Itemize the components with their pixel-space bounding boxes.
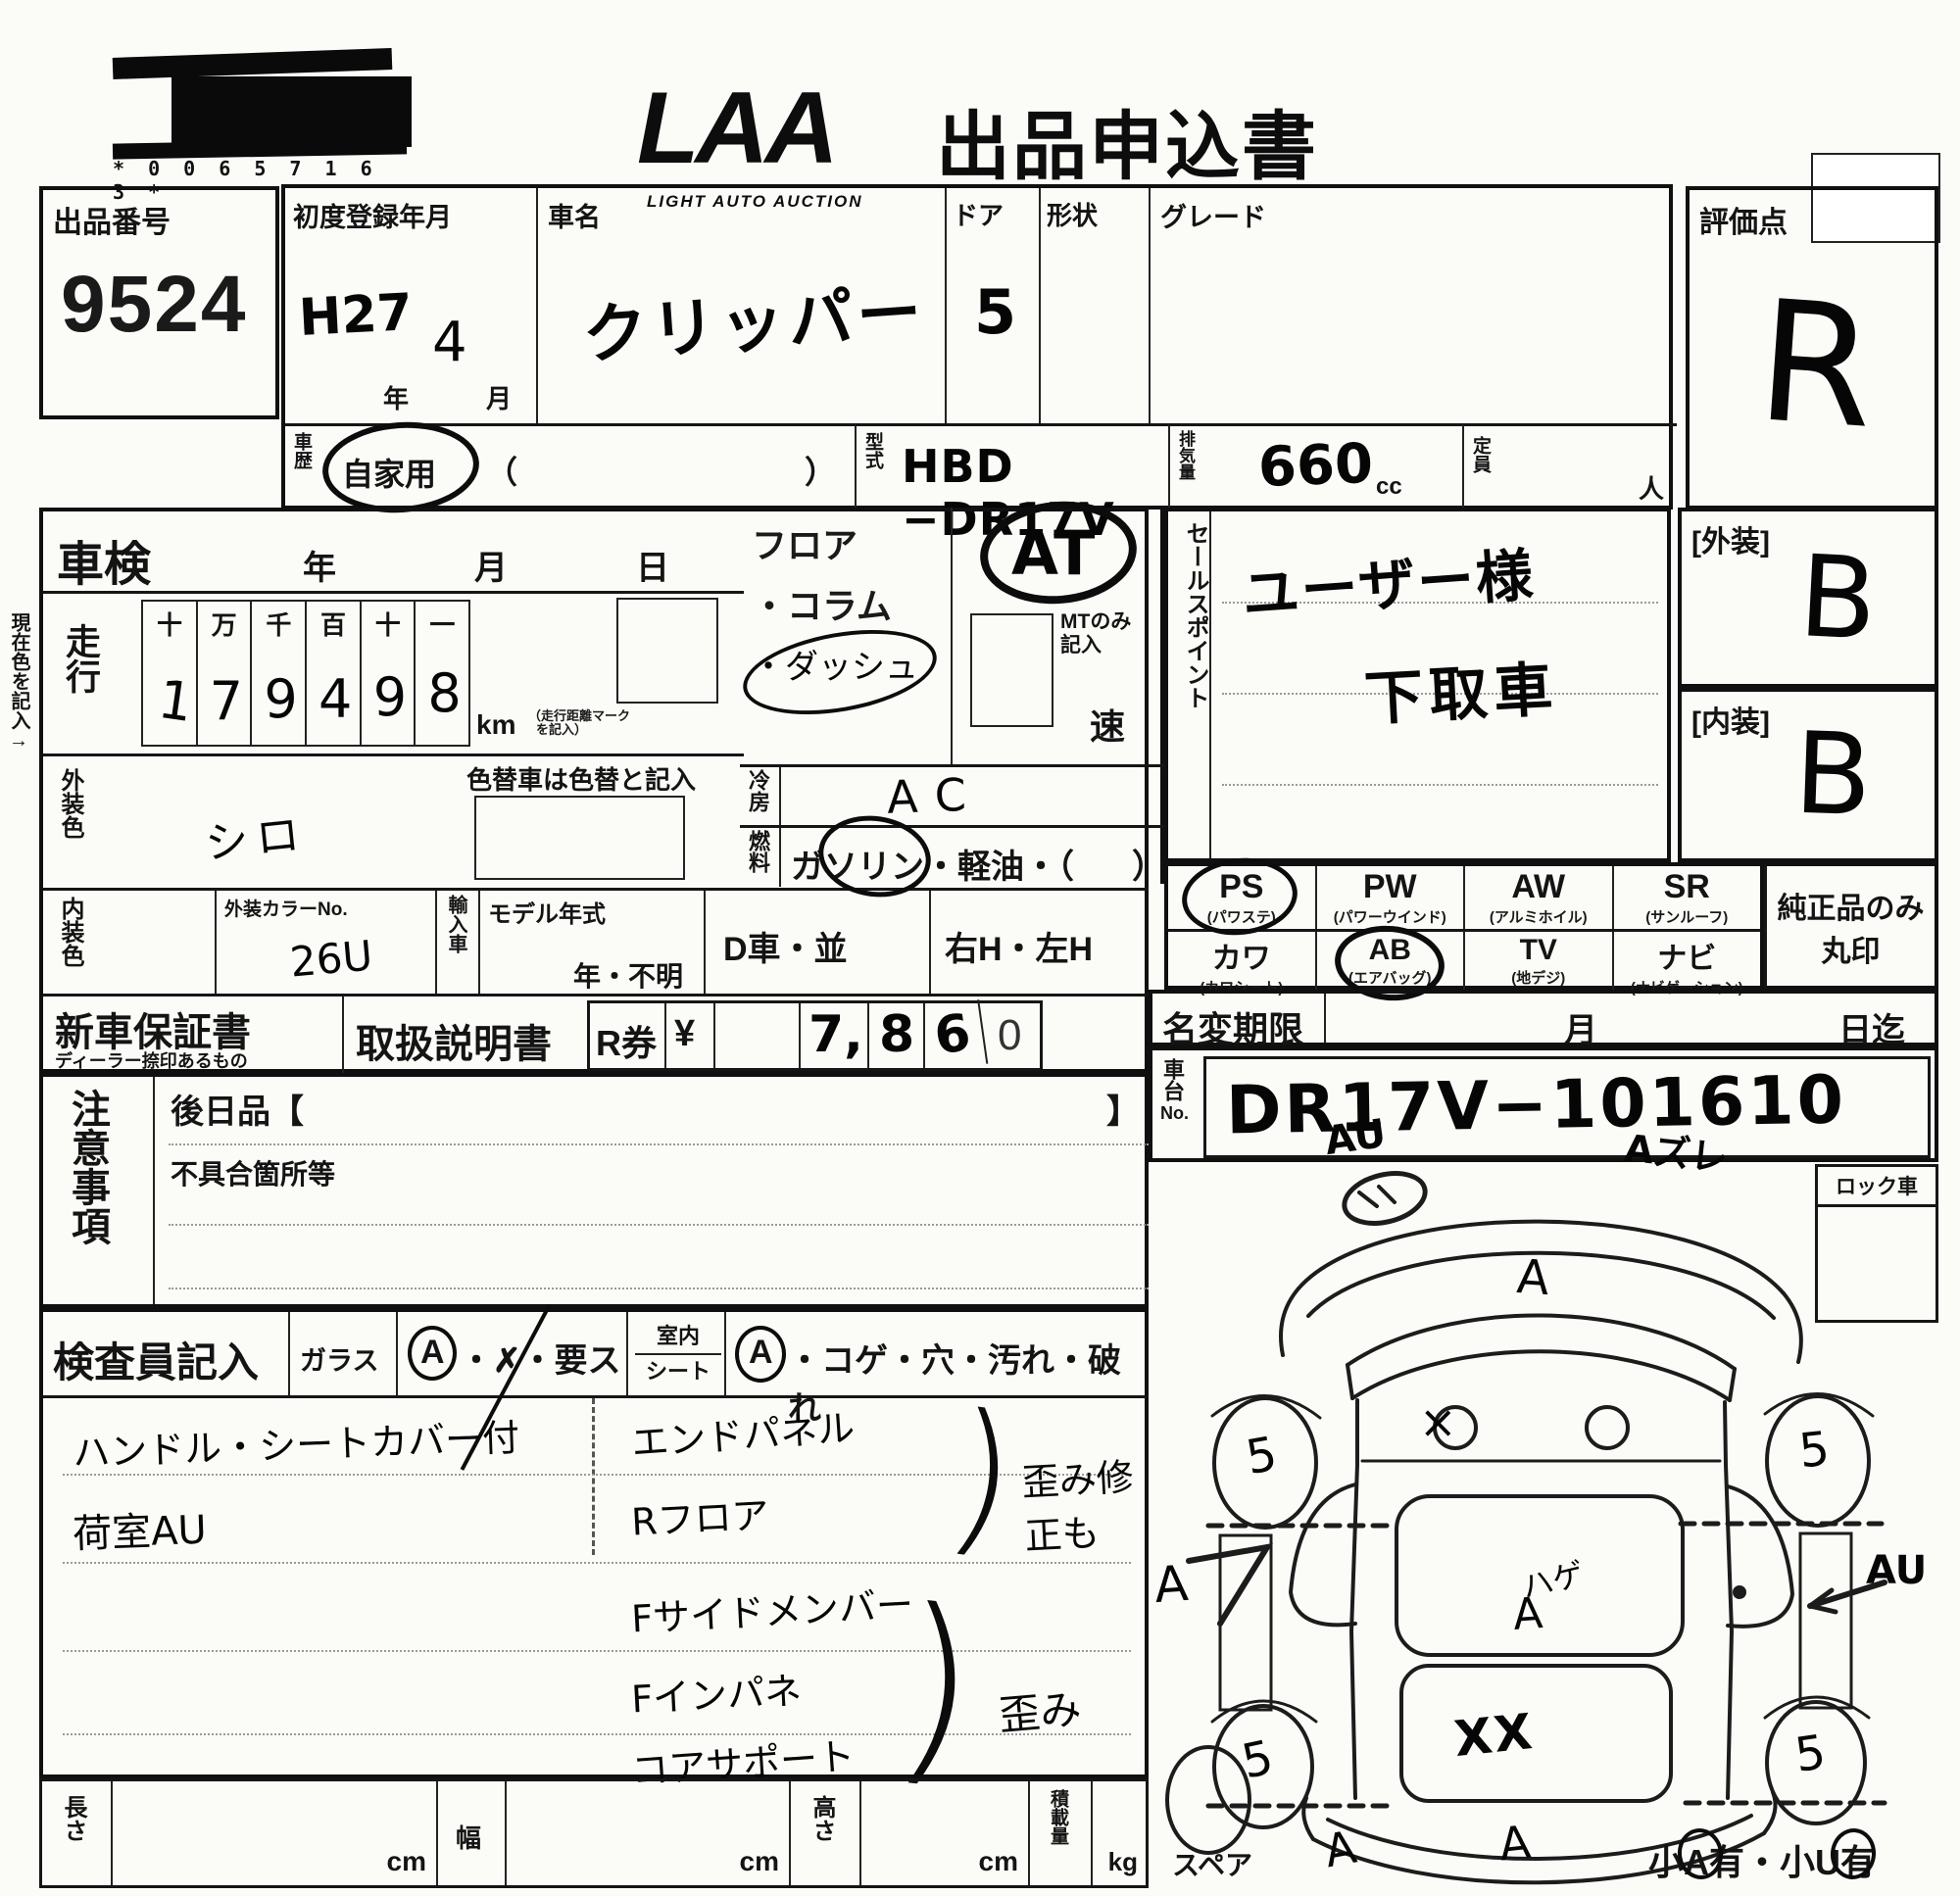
warranty-cell: 新車保証書 ディーラー捺印あるもの <box>43 997 342 1076</box>
mileage-digit: 8 <box>427 662 461 724</box>
inspector-note-group1: 歪み修正も <box>1020 1446 1148 1560</box>
amount-digit-printed: 0 <box>984 1003 1040 1068</box>
model-year-label: モデル年式 <box>488 895 606 929</box>
manual-label: 取扱説明書 <box>356 1012 552 1069</box>
model-year-cell: モデル年式 年・不明 <box>478 891 704 997</box>
interior-grade-box: [内装] B <box>1678 688 1938 862</box>
month-unit: 月 <box>486 379 512 415</box>
ext-color-no-label: 外装カラーNo. <box>224 895 348 921</box>
warranty-sub: ディーラー捺印あるもの <box>55 1047 248 1073</box>
height-label: 高さ <box>808 1795 834 1842</box>
d-car-cell: D車・並 <box>704 891 929 997</box>
model-code-cell: 型式 HBD −DR17V <box>855 423 1168 510</box>
mileage-header: 十 <box>375 606 401 642</box>
car-name-cell: 車名 クリッパー <box>538 188 947 423</box>
equip-cell-pw: PW (パワーウインド) <box>1317 866 1466 929</box>
first-reg-label: 初度登録年月 <box>293 196 452 234</box>
inspector-note-right-1: エンドパネル <box>629 1397 856 1467</box>
cabin-label-line2: シート <box>635 1355 721 1388</box>
diagram-ann-hood: A <box>1515 1249 1551 1306</box>
mileage-header: 千 <box>266 606 291 642</box>
first-reg-month: 4 <box>432 311 467 374</box>
equip-code: TV <box>1465 932 1612 967</box>
length-label-cell: 長さ <box>42 1781 113 1885</box>
inspector-column-divider <box>592 1398 595 1555</box>
mileage-digit: 7 <box>210 670 243 732</box>
name-change-row: 名変期限 月 日迄 <box>1149 990 1938 1046</box>
notes-dotted-line <box>169 1288 1149 1289</box>
inspector-note-left-1: ハンドル・シートカバー付 <box>72 1407 520 1477</box>
capacity-label: 定員 <box>1470 436 1490 473</box>
auction-no-box: 出品番号 9524 <box>39 186 279 419</box>
measurements-row: 長さ cm 幅 cm 高さ cm 積載量 kg <box>39 1778 1149 1888</box>
r-ticket-group: R券 ¥ 7, 8 6 0 <box>587 1000 1043 1071</box>
equip-name: (サンルーフ) <box>1614 906 1761 927</box>
inspector-note-right-3: Fサイドメンバー <box>630 1575 914 1643</box>
ac-value: AC <box>886 767 985 823</box>
equip-code: SR <box>1614 866 1761 906</box>
rating-box: 評価点 R <box>1686 186 1938 510</box>
ac-label: 冷房 <box>746 769 769 812</box>
equip-cell-ab: AB (エアバッグ) <box>1317 932 1466 990</box>
genuine-note-box: 純正品のみ 丸印 <box>1764 862 1938 990</box>
chassis-row: 車台 No. DR17V−101610 <box>1149 1046 1938 1162</box>
transmission-block: フロア ・コラム ・ダッシュ AT MTのみ記入 速 冷房 AC 燃料 ガソリン… <box>740 508 1164 884</box>
spare-label: スペア <box>1172 1844 1252 1883</box>
auction-no-label: 出品番号 <box>53 198 171 241</box>
diagram-ann-windshield: × <box>1419 1395 1457 1448</box>
rating-value: R <box>1751 265 1881 466</box>
handle-cell: 右H・左H <box>929 891 1149 997</box>
color-change-note: 色替車は色替と記入 <box>466 760 696 797</box>
chassis-label: 車台 No. <box>1160 1058 1200 1125</box>
car-name-value: クリッパー <box>579 260 928 377</box>
glass-a-circle <box>408 1326 457 1381</box>
equip-cell-kawa: カワ (カワシート) <box>1168 932 1317 990</box>
name-change-divider <box>1324 994 1326 1043</box>
equip-cell-sr: SR (サンルーフ) <box>1614 866 1761 929</box>
grade-label: グレード <box>1160 196 1266 234</box>
mileage-digit: 9 <box>373 666 407 728</box>
barcode-stamp: * 0 0 6 5 7 1 6 3 * <box>59 41 402 173</box>
later-items-label: 後日品【 <box>171 1085 304 1133</box>
mileage-digit: 1 <box>155 668 197 734</box>
equip-code: ナビ <box>1614 932 1761 977</box>
shaken-row: 車検 年 月 日 <box>43 511 744 594</box>
mileage-digit: 9 <box>264 668 297 730</box>
height-value-cell: cm <box>861 1781 1030 1885</box>
history-cell: 車歴 自家用 （ ） <box>285 423 855 510</box>
mt-note: MTのみ記入 <box>1060 610 1151 657</box>
inspector-label: 検査員記入 <box>53 1330 259 1389</box>
displacement-cell: 排気量 660 cc <box>1168 423 1462 510</box>
mileage-digit: 4 <box>318 668 352 730</box>
equip-name: (地デジ) <box>1465 967 1612 988</box>
width-label-cell: 幅 <box>438 1781 507 1885</box>
shaken-label: 車検 <box>57 525 151 594</box>
shape-label: 形状 <box>1047 196 1098 232</box>
mileage-header: 一 <box>429 606 455 642</box>
year-unit: 年 <box>383 379 409 415</box>
diagram-ann-side-left: A <box>1152 1555 1190 1614</box>
equip-cell-aw: AW (アルミホイル) <box>1465 866 1614 929</box>
length-unit: cm <box>387 1846 426 1877</box>
auction-no-value: 9524 <box>61 259 247 351</box>
margin-note: 現在色を記入→ <box>8 612 29 752</box>
equip-name: (パワーウインド) <box>1317 906 1464 927</box>
name-change-month: 月 <box>1564 1003 1597 1051</box>
barcode-bar <box>113 48 393 79</box>
equipment-grid: PS (パワステ) PW (パワーウインド) AW (アルミホイル) SR (サ… <box>1164 862 1764 990</box>
barcode-block <box>171 76 412 147</box>
width-label: 幅 <box>456 1819 481 1855</box>
shaken-day-unit: 日 <box>636 541 669 589</box>
displacement-value: 660 <box>1257 432 1374 500</box>
history-paren-open: （ <box>486 448 517 493</box>
ext-color-no-value: 26U <box>288 931 374 986</box>
height-unit: cm <box>979 1846 1018 1877</box>
mileage-header: 万 <box>212 606 237 642</box>
int-color-row: 内装色 外装カラーNo. 26U 輸入車 モデル年式 年・不明 D車・並 右H・… <box>43 888 1149 994</box>
ac-row: 冷房 AC <box>740 764 1164 825</box>
mileage-row: 走行 十 1 万 7 千 9 百 4 十 <box>43 594 744 754</box>
height-label-cell: 高さ <box>791 1781 861 1885</box>
laa-logo: LAA <box>637 71 835 187</box>
name-change-label: 名変期限 <box>1162 1001 1303 1052</box>
shape-cell: 形状 <box>1041 188 1151 423</box>
manual-cell: 取扱説明書 <box>342 997 587 1076</box>
r-ticket-label: R券 <box>590 1003 666 1068</box>
interior-grade-value: B <box>1792 708 1875 843</box>
grade-cell: グレード <box>1151 188 1677 423</box>
chassis-value: DR17V−101610 <box>1225 1061 1846 1149</box>
defects-label: 不具合箇所等 <box>171 1153 335 1192</box>
auction-sheet: * 0 0 6 5 7 1 6 3 * LAA LIGHT AUTO AUCTI… <box>0 0 1960 1896</box>
load-unit: kg <box>1108 1847 1138 1877</box>
ext-color-row: 外装色 シロ 色替車は色替と記入 <box>43 754 744 888</box>
first-reg-cell: 初度登録年月 H27 年 4 月 <box>285 188 538 423</box>
diagram-wheel-mark-fr: 5 <box>1796 1422 1832 1480</box>
inspector-div4 <box>724 1312 726 1395</box>
speed-unit: 速 <box>1090 699 1125 750</box>
width-unit: cm <box>740 1846 779 1877</box>
first-reg-era: H27 <box>298 283 415 348</box>
shaken-month-unit: 月 <box>474 541 508 589</box>
notes-dotted-line <box>169 1224 1149 1226</box>
exterior-grade-value: B <box>1796 531 1881 666</box>
yen-symbol: ¥ <box>666 1003 715 1068</box>
load-value-cell: kg <box>1093 1781 1146 1885</box>
equip-cell-navi: ナビ (ナビゲーション) <box>1614 932 1761 990</box>
floor-line2: ・コラム <box>752 576 918 637</box>
inspector-div2 <box>396 1312 398 1395</box>
sales-line2: 下取車 <box>1362 642 1560 737</box>
model-code-label: 型式 <box>862 432 882 469</box>
interior-grade-label: [内装] <box>1691 698 1770 741</box>
sales-label-divider <box>1209 511 1211 858</box>
genuine-note-line2: 丸印 <box>1767 927 1935 970</box>
width-value-cell: cm <box>507 1781 791 1885</box>
equip-code: PW <box>1317 866 1464 906</box>
ext-color-value: シロ <box>202 799 310 872</box>
inspector-note-left-2: 荷室AU <box>72 1498 208 1560</box>
history-hand-circle <box>319 417 482 518</box>
speed-blank-box <box>970 613 1053 727</box>
car-name-label: 車名 <box>548 196 601 234</box>
inspector-note-right-2: Rフロア <box>630 1484 770 1545</box>
docs-row: 新車保証書 ディーラー捺印あるもの 取扱説明書 R券 ¥ 7, 8 6 0 <box>43 994 1149 1073</box>
mileage-header: 百 <box>320 606 346 642</box>
vehicle-info-grid: 初度登録年月 H27 年 4 月 車名 クリッパー ドア 5 形状 グレード 車… <box>281 184 1673 510</box>
diagram-ann-front-left: AU <box>1322 1111 1389 1164</box>
length-label: 長さ <box>60 1795 85 1842</box>
later-items-bracket: 】 <box>1106 1085 1140 1133</box>
name-change-day: 日迄 <box>1838 1003 1905 1051</box>
inspector-note-group2: 歪み <box>997 1676 1084 1742</box>
ext-color-label: 外装色 <box>57 768 82 839</box>
equip-code: AW <box>1465 866 1612 906</box>
displacement-label: 排気量 <box>1176 430 1194 480</box>
model-year-value: 年・不明 <box>573 955 683 995</box>
chassis-value-box: DR17V−101610 <box>1203 1056 1931 1158</box>
glass-grade-rest: ・✗・要ス <box>460 1334 621 1382</box>
ext-color-no-cell: 外装カラーNo. 26U <box>215 891 435 997</box>
sales-dotted-line <box>1222 784 1658 786</box>
mileage-note: （走行距離マーク を記入） <box>528 709 630 737</box>
inspector-box: 検査員記入 ガラス A ・✗・要ス 室内 シート A ・コゲ・穴・汚れ・破れ ハ… <box>39 1308 1149 1778</box>
cabin-label: 室内 シート <box>635 1320 721 1388</box>
history-paren-close: ） <box>805 448 836 493</box>
glass-label: ガラス <box>300 1339 378 1378</box>
chassis-label-no: No. <box>1160 1101 1200 1125</box>
fuel-divider <box>779 828 781 887</box>
notes-label: 注意事項 <box>61 1089 114 1245</box>
capacity-cell: 定員 人 <box>1462 423 1677 510</box>
door-cell: ドア 5 <box>947 188 1041 423</box>
door-label: ドア <box>953 196 1004 232</box>
floor-line1: フロア <box>752 515 918 576</box>
inspector-div3 <box>626 1312 628 1395</box>
fuel-row: 燃料 ガソリン・軽油・（ ） <box>740 825 1164 884</box>
at-cell: AT MTのみ記入 速 <box>951 508 1164 764</box>
fuel-paren-close: ） <box>1132 840 1165 888</box>
diagram-ann-center-2: A <box>1511 1588 1544 1640</box>
at-hand-circle <box>976 495 1141 610</box>
sales-line1: ユーザー様 <box>1239 529 1537 632</box>
inspector-div1 <box>288 1312 290 1395</box>
chassis-label-kanji: 車台 <box>1160 1058 1184 1101</box>
mileage-blank-box <box>616 598 718 704</box>
rating-label: 評価点 <box>1699 198 1788 241</box>
diagram-ann-rear-right: A <box>1496 1816 1533 1872</box>
corner-note: 小A有・小U有 <box>1648 1834 1876 1885</box>
handle-value: 右H・左H <box>945 922 1093 970</box>
amount-digit: 7, <box>801 1003 869 1068</box>
diagram-ann-rear-window: XX <box>1451 1703 1537 1768</box>
displacement-unit: cc <box>1376 473 1402 501</box>
color-change-box <box>474 796 685 880</box>
notes-divider <box>153 1077 155 1304</box>
diagram-ann-side-right: AU <box>1866 1548 1927 1593</box>
length-value-cell: cm <box>113 1781 438 1885</box>
corner-part: 有・小 <box>1709 1842 1815 1882</box>
inspector-note-right-4: Fインパネ <box>630 1660 803 1723</box>
import-cell: 輸入車 <box>435 891 478 997</box>
form-title: 出品申込書 <box>936 86 1318 194</box>
notes-box: 注意事項 後日品【 】 不具合箇所等 <box>39 1073 1149 1308</box>
amount-digit: 8 <box>869 1003 925 1068</box>
shaken-year-unit: 年 <box>303 541 336 589</box>
fuel-label: 燃料 <box>746 830 769 873</box>
d-car-value: D車・並 <box>723 922 848 970</box>
door-value: 5 <box>974 276 1016 348</box>
mileage-header: 十 <box>157 606 182 642</box>
mileage-label: 走行 <box>61 623 100 694</box>
seat-a-circle <box>735 1326 786 1383</box>
mileage-table: 十 1 万 7 千 9 百 4 十 9 <box>141 600 470 747</box>
capacity-unit: 人 <box>1639 469 1664 506</box>
load-label-cell: 積載量 <box>1030 1781 1093 1885</box>
equip-cell-tv: TV (地デジ) <box>1465 932 1614 990</box>
mileage-unit: km <box>476 709 515 741</box>
exterior-grade-label: [外装] <box>1691 517 1770 560</box>
int-color-label: 内装色 <box>57 897 82 967</box>
genuine-note-line1: 純正品のみ <box>1767 866 1935 927</box>
equip-cell-ps: PS (パワステ) <box>1168 866 1317 929</box>
equip-name: (アルミホイル) <box>1465 906 1612 927</box>
exterior-grade-box: [外装] B <box>1678 508 1938 688</box>
notes-dotted-line <box>169 1143 1149 1145</box>
amount-digit: 6 <box>921 999 989 1072</box>
history-label: 車歴 <box>291 432 311 469</box>
sales-point-box: セールスポイント ユーザー様 下取車 <box>1164 508 1671 862</box>
equip-code: カワ <box>1168 932 1315 977</box>
load-label: 積載量 <box>1048 1789 1068 1845</box>
import-label: 輸入車 <box>445 895 466 953</box>
amount-blank-cell <box>715 1003 801 1068</box>
cabin-label-line1: 室内 <box>635 1320 721 1355</box>
diagram-ann-front-right: Aズレ <box>1622 1118 1731 1183</box>
ac-divider <box>779 767 781 828</box>
